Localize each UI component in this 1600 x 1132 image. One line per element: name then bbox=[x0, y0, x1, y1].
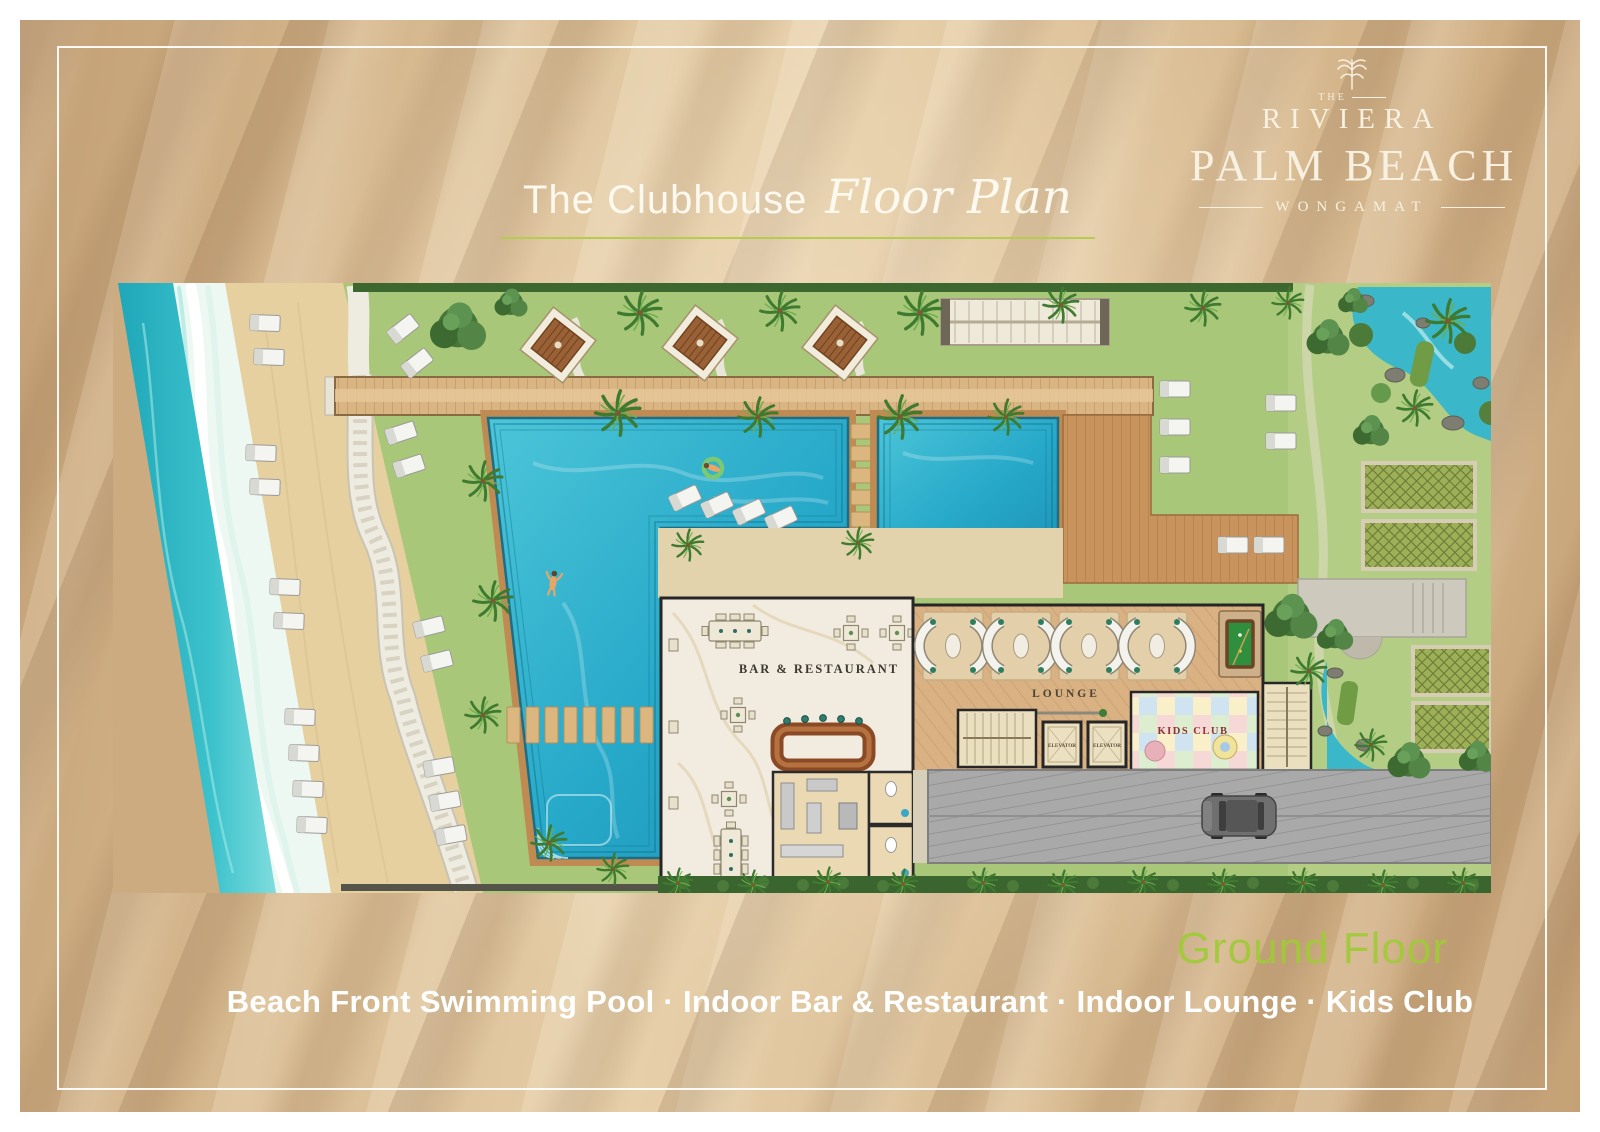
floor-plan: BAR & RESTAURANT LOUNGE bbox=[113, 283, 1491, 893]
brand-palm-beach: PALM BEACH bbox=[1190, 140, 1514, 191]
sofa-set bbox=[987, 612, 1054, 680]
billiard-table bbox=[1219, 611, 1261, 677]
features-line: Beach Front Swimming Pool · Indoor Bar &… bbox=[110, 984, 1590, 1020]
floor-label: Ground Floor bbox=[1177, 924, 1448, 974]
brand-riviera: RIVIERA bbox=[1190, 103, 1514, 136]
brand-logo: THE RIVIERA PALM BEACH WONGAMAT bbox=[1190, 56, 1514, 216]
brand-the-row: THE bbox=[1190, 92, 1514, 103]
car bbox=[1202, 793, 1276, 839]
title-regular: The Clubhouse bbox=[523, 178, 807, 222]
pergola bbox=[941, 299, 1109, 345]
sofa-set bbox=[1123, 612, 1190, 680]
brand-rule-right bbox=[1441, 207, 1505, 208]
title-script: Floor Plan bbox=[825, 170, 1072, 225]
lounge: LOUNGE KIDS CLUB bbox=[913, 605, 1263, 773]
brand-wongamat-row: WONGAMAT bbox=[1190, 199, 1514, 216]
boardwalk bbox=[325, 377, 1153, 415]
stairwell-left bbox=[958, 710, 1036, 767]
kitchen bbox=[773, 772, 869, 884]
brand-the-rule bbox=[1352, 97, 1386, 98]
elevator-2: ELEVATOR bbox=[1088, 722, 1126, 767]
kids-club: KIDS CLUB bbox=[1131, 692, 1258, 770]
brand-the: THE bbox=[1318, 92, 1346, 103]
washrooms bbox=[869, 772, 913, 884]
brand-rule-left bbox=[1199, 207, 1263, 208]
bottom-hedge bbox=[658, 876, 1491, 893]
page: THE RIVIERA PALM BEACH WONGAMAT The Club… bbox=[0, 0, 1600, 1132]
lounge-label: LOUNGE bbox=[1032, 688, 1100, 700]
elevator-label: ELEVATOR bbox=[1093, 743, 1121, 749]
brand-wongamat: WONGAMAT bbox=[1275, 199, 1428, 216]
sofa-set bbox=[919, 612, 986, 680]
bar-restaurant-label: BAR & RESTAURANT bbox=[739, 662, 899, 676]
elevator-label: ELEVATOR bbox=[1048, 743, 1076, 749]
kids-club-label: KIDS CLUB bbox=[1158, 726, 1229, 737]
title-underline bbox=[500, 237, 1095, 239]
page-title: The ClubhouseFloor Plan bbox=[500, 170, 1095, 239]
palm-flourish-icon bbox=[1329, 56, 1375, 90]
elevator-1: ELEVATOR bbox=[1043, 722, 1081, 767]
sofa-set bbox=[1055, 612, 1122, 680]
top-hedge bbox=[353, 283, 1293, 292]
beach-wall bbox=[341, 884, 661, 891]
stairwell-right bbox=[1263, 683, 1311, 771]
driveway bbox=[913, 770, 1491, 863]
